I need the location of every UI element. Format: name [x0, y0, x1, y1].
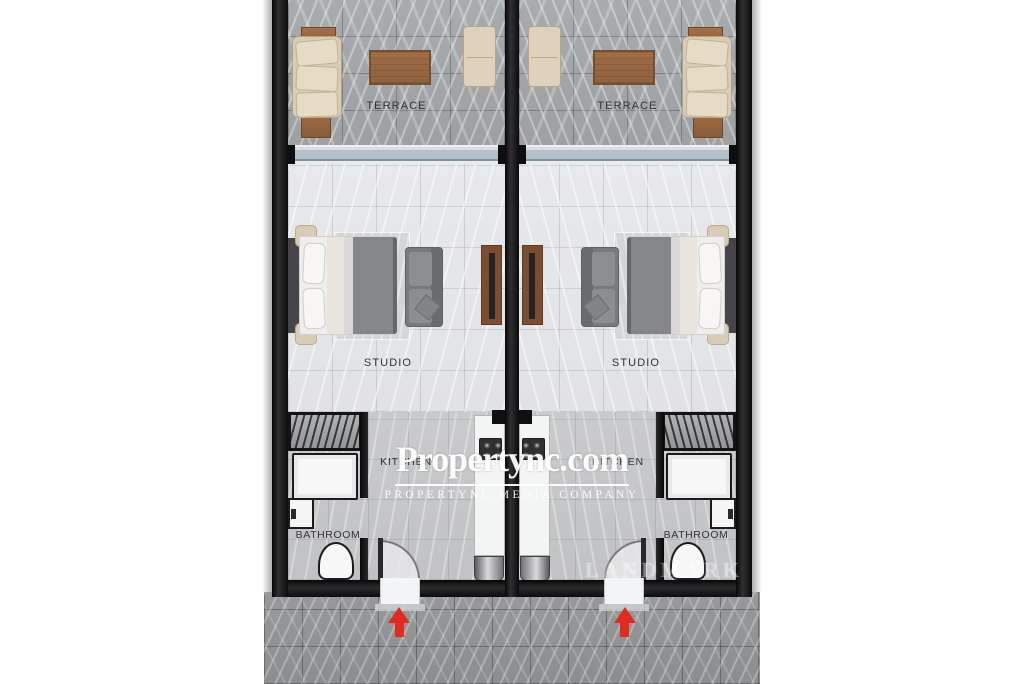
bottom-wall — [272, 580, 380, 597]
sliding-glass-door — [519, 145, 736, 166]
bed-duvet — [627, 237, 680, 334]
entry-threshold — [380, 578, 420, 604]
pillow — [698, 287, 722, 329]
bathtub — [292, 453, 358, 500]
bathtub — [666, 453, 732, 500]
kitchen-wall-stub — [492, 410, 505, 424]
arrow-head-icon — [388, 607, 410, 623]
bathroom-label: BATHROOM — [658, 529, 734, 541]
center-party-wall — [505, 0, 519, 597]
shower — [288, 412, 362, 451]
sofa-seat-cushion — [592, 252, 615, 286]
studio-label: STUDIO — [536, 357, 736, 369]
arrow-head-icon — [614, 607, 636, 623]
entry-arrow — [613, 607, 636, 638]
shower — [662, 412, 736, 451]
entry-door — [378, 538, 383, 582]
watermark-tagline: PROPERTYNC MEDIA COMPANY — [385, 489, 640, 501]
terrace-armchair — [528, 26, 561, 87]
sofa-seat-cushion — [409, 252, 432, 286]
pillow — [698, 242, 722, 284]
studio-label: STUDIO — [288, 357, 488, 369]
terrace-label: TERRACE — [288, 100, 505, 112]
bed-duvet — [344, 237, 397, 334]
bottom-wall — [420, 580, 505, 597]
terrace-label: TERRACE — [519, 100, 736, 112]
bathroom-wall — [360, 538, 368, 580]
entry-cabinet — [474, 556, 504, 581]
kitchen-wall-stub — [519, 410, 532, 424]
bed — [627, 236, 725, 335]
right-exterior-wall — [736, 0, 752, 597]
sink — [710, 498, 736, 529]
bathroom-label: BATHROOM — [290, 529, 366, 541]
sliding-glass-door — [288, 145, 505, 166]
watermark-divider — [395, 484, 629, 486]
pillow — [302, 287, 326, 329]
watermark-brand: Propertync.com — [396, 438, 628, 480]
sofa-cushion — [295, 38, 339, 67]
unit-left: TERRACE STUDIO BATHROOM — [288, 0, 505, 684]
bathroom — [656, 412, 736, 580]
pillow — [302, 242, 326, 284]
floor-plan: TERRACE STUDIO BATHROOM — [0, 0, 1024, 684]
studio-sofa — [405, 247, 443, 327]
tv-screen — [489, 253, 495, 319]
terrace-armchair — [463, 26, 496, 87]
arrow-stem — [395, 622, 404, 637]
terrace-coffee-table — [593, 50, 655, 85]
sofa-cushion — [295, 65, 338, 92]
terrace-coffee-table — [369, 50, 431, 85]
bathroom-wall — [656, 412, 664, 498]
left-exterior-wall — [272, 0, 288, 597]
arrow-stem — [620, 622, 629, 637]
bed — [299, 236, 397, 335]
tv-screen — [529, 253, 535, 319]
entry-cabinet — [520, 556, 550, 581]
right-wall-shadow — [752, 0, 762, 592]
bathroom — [288, 412, 368, 580]
sofa-cushion — [685, 65, 728, 92]
toilet — [318, 542, 354, 580]
studio-sofa — [581, 247, 619, 327]
sink — [288, 498, 314, 529]
sofa-cushion — [685, 38, 729, 67]
bathroom-wall — [360, 412, 368, 498]
entry-arrow — [388, 607, 411, 638]
watermark-agency: LANDMARK — [585, 558, 743, 583]
tv-console — [522, 245, 543, 325]
left-wall-shadow — [262, 0, 272, 592]
tv-console — [481, 245, 502, 325]
